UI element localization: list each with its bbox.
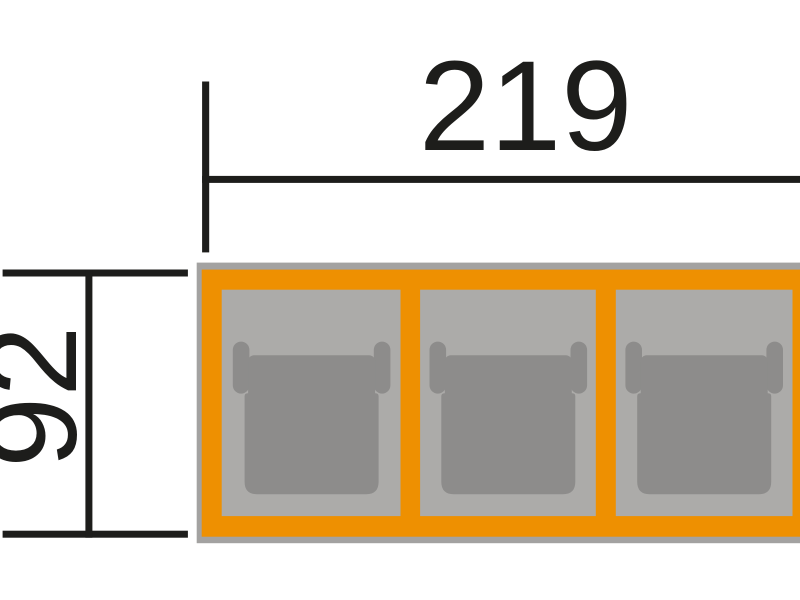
svg-text:219: 219 bbox=[419, 35, 633, 178]
svg-text:92: 92 bbox=[0, 326, 104, 468]
